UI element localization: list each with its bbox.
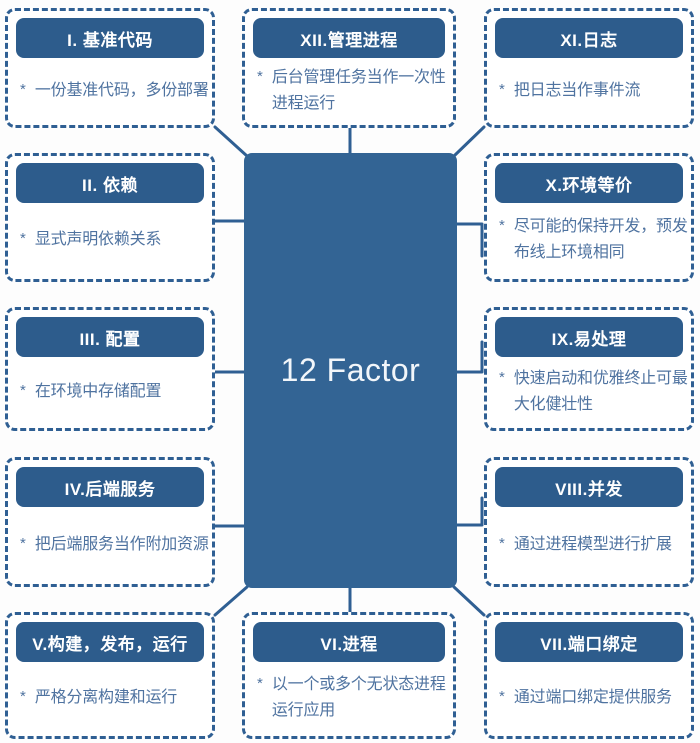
factor-3-title: III. 配置 (16, 317, 204, 357)
factor-box-8-concurrency: VIII.并发 * 通过进程模型进行扩展 (484, 457, 694, 587)
factor-6-title: VI.进程 (253, 622, 445, 662)
factor-5-desc: 严格分离构建和运行 (35, 685, 177, 711)
factor-box-1-codebase: I. 基准代码 * 一份基准代码，多份部署 (5, 8, 215, 128)
connector-factor-8 (455, 498, 482, 525)
factor-3-desc: 在环境中存储配置 (35, 379, 161, 405)
bullet-star-icon: * (20, 226, 26, 252)
factor-8-title: VIII.并发 (495, 467, 683, 507)
connector-factor-7 (454, 587, 484, 615)
factor-1-desc: 一份基准代码，多份部署 (35, 78, 209, 104)
factor-7-title: VII.端口绑定 (495, 622, 683, 662)
connector-factor-10 (455, 224, 482, 256)
bullet-star-icon: * (499, 77, 505, 103)
factor-2-title: II. 依赖 (16, 163, 204, 203)
factor-box-11-logs: XI.日志 * 把日志当作事件流 (484, 8, 694, 128)
factor-12-title: XII.管理进程 (253, 18, 445, 58)
bullet-star-icon: * (20, 77, 26, 103)
connector-factor-5 (215, 587, 247, 615)
center-label: 12 Factor (281, 352, 421, 389)
factor-9-title: IX.易处理 (495, 317, 683, 357)
factor-4-desc: 把后端服务当作附加资源 (35, 532, 209, 558)
factor-box-6-processes: VI.进程 * 以一个或多个无状态进程 运行应用 (242, 612, 456, 739)
bullet-star-icon: * (257, 671, 263, 697)
factor-5-title: V.构建，发布，运行 (16, 622, 204, 662)
factor-box-5-build-release-run: V.构建，发布，运行 * 严格分离构建和运行 (5, 612, 215, 739)
connector-factor-9 (455, 342, 482, 372)
bullet-star-icon: * (499, 365, 505, 391)
factor-box-7-port-binding: VII.端口绑定 * 通过端口绑定提供服务 (484, 612, 694, 739)
factor-10-desc: 尽可能的保持开发，预发 布线上环境相同 (514, 214, 688, 266)
bullet-star-icon: * (20, 684, 26, 710)
bullet-star-icon: * (20, 531, 26, 557)
factor-1-title: I. 基准代码 (16, 18, 204, 58)
factor-11-title: XI.日志 (495, 18, 683, 58)
connector-factor-1 (215, 127, 247, 156)
factor-8-desc: 通过进程模型进行扩展 (514, 532, 672, 558)
bullet-star-icon: * (257, 64, 263, 90)
factor-box-4-backing-services: IV.后端服务 * 把后端服务当作附加资源 (5, 457, 215, 587)
factor-box-3-config: III. 配置 * 在环境中存储配置 (5, 307, 215, 431)
bullet-star-icon: * (499, 213, 505, 239)
factor-box-12-admin-processes: XII.管理进程 * 后台管理任务当作一次性 进程运行 (242, 8, 456, 128)
bullet-star-icon: * (20, 378, 26, 404)
factor-2-desc: 显式声明依赖关系 (35, 227, 161, 253)
factor-7-desc: 通过端口绑定提供服务 (514, 685, 672, 711)
factor-9-desc: 快速启动和优雅终止可最 大化健壮性 (514, 366, 688, 418)
bullet-star-icon: * (499, 531, 505, 557)
factor-4-title: IV.后端服务 (16, 467, 204, 507)
factor-11-desc: 把日志当作事件流 (514, 78, 640, 104)
factor-box-10-dev-prod-parity: X.环境等价 * 尽可能的保持开发，预发 布线上环境相同 (484, 153, 694, 282)
connector-factor-11 (454, 127, 484, 156)
twelve-factor-diagram: I. 基准代码 * 一份基准代码，多份部署 XII.管理进程 * 后台管理任务当… (0, 0, 700, 743)
center-12-factor: 12 Factor (244, 153, 457, 588)
factor-6-desc: 以一个或多个无状态进程 运行应用 (272, 672, 446, 724)
factor-10-title: X.环境等价 (495, 163, 683, 203)
factor-box-2-dependencies: II. 依赖 * 显式声明依赖关系 (5, 153, 215, 282)
bullet-star-icon: * (499, 684, 505, 710)
factor-12-desc: 后台管理任务当作一次性 进程运行 (272, 65, 446, 117)
factor-box-9-disposability: IX.易处理 * 快速启动和优雅终止可最 大化健壮性 (484, 307, 694, 431)
